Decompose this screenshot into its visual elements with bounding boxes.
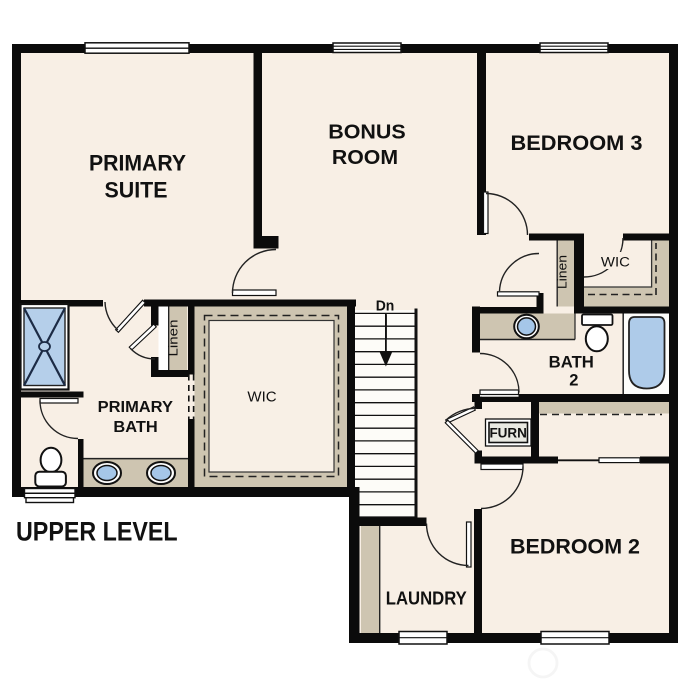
svg-text:BATH: BATH [113,419,157,436]
svg-text:PRIMARY: PRIMARY [89,151,186,176]
svg-text:ROOM: ROOM [332,146,398,169]
svg-text:FURN: FURN [489,425,527,440]
svg-text:PRIMARY: PRIMARY [98,399,174,416]
svg-text:LAUNDRY: LAUNDRY [386,589,467,609]
svg-text:BEDROOM 2: BEDROOM 2 [510,536,640,559]
svg-text:BATH: BATH [549,353,594,371]
svg-text:Linen: Linen [556,255,570,289]
svg-text:Linen: Linen [167,319,181,356]
svg-text:BONUS: BONUS [328,121,406,144]
svg-text:Dn: Dn [376,298,395,315]
svg-text:UPPER LEVEL: UPPER LEVEL [16,516,178,546]
svg-text:BEDROOM 3: BEDROOM 3 [511,132,643,155]
svg-text:2: 2 [569,372,578,390]
svg-text:WIC: WIC [601,255,630,270]
svg-text:SUITE: SUITE [105,178,168,203]
svg-text:WIC: WIC [247,388,276,405]
